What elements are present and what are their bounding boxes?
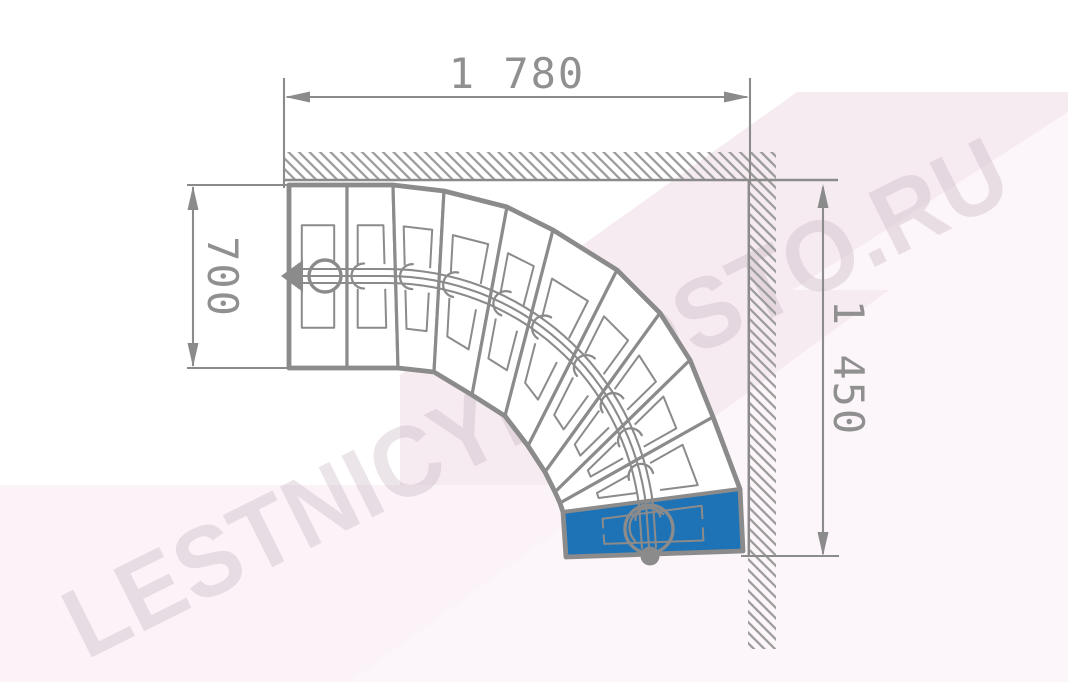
arrow-up-icon	[188, 186, 199, 210]
arrow-left-icon	[285, 92, 310, 103]
walk-end-dot-icon	[641, 547, 660, 566]
staircase-plan-drawing: LESTNICYPROSTO.RU 1 780 700	[0, 0, 1068, 682]
top-wall-hatch	[285, 152, 773, 180]
dimension-left: 700	[187, 185, 293, 368]
right-wall-hatch	[748, 152, 776, 649]
arrow-down-icon	[188, 343, 199, 367]
dimension-left-label: 700	[198, 236, 247, 318]
dimension-right-label: 1 450	[824, 300, 873, 436]
arrow-right-icon	[724, 92, 749, 103]
drawing-svg: LESTNICYPROSTO.RU 1 780 700	[0, 0, 1068, 682]
dimension-top-label: 1 780	[449, 49, 585, 98]
